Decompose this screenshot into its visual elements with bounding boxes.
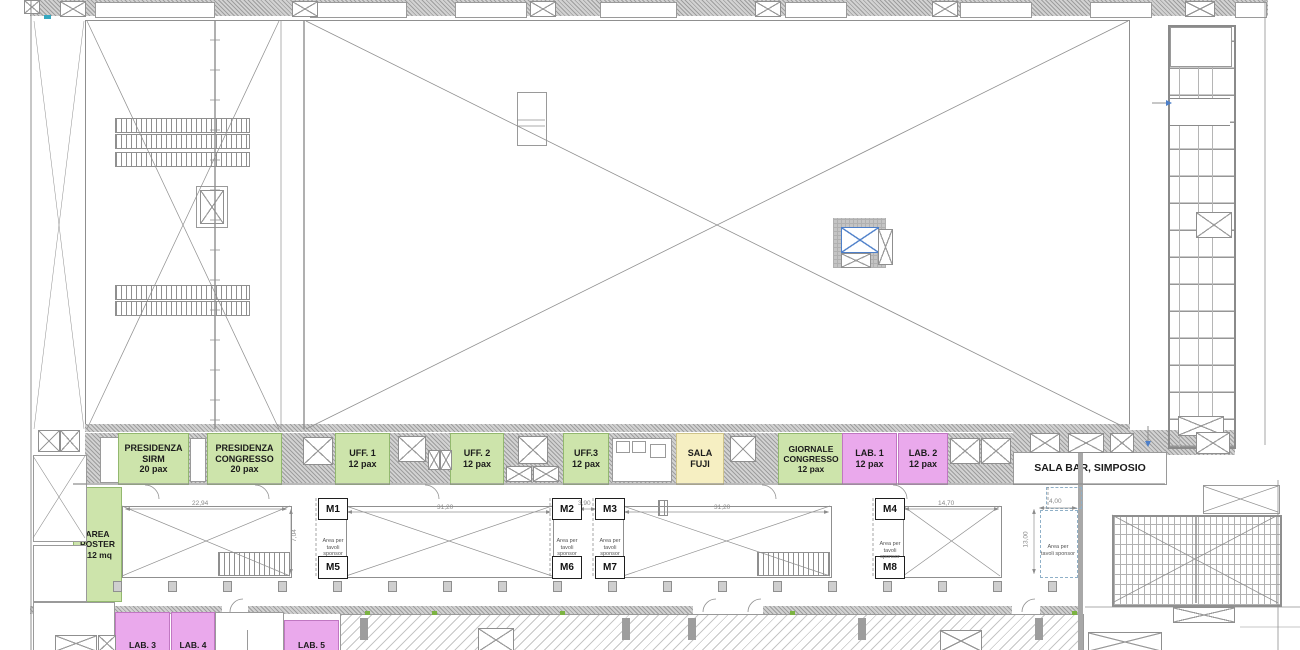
sponsor-area-label: Area per tavoli sponsor xyxy=(594,538,626,558)
top-rooms-block xyxy=(785,2,847,18)
hall-bottom-wall xyxy=(85,424,1130,432)
plant-marker xyxy=(432,611,437,615)
column-marker xyxy=(168,581,177,592)
elevator-cab xyxy=(533,466,559,482)
stairs xyxy=(115,118,250,133)
service-room xyxy=(100,437,120,483)
room-uff-3: UFF.3 12 pax xyxy=(563,433,609,485)
shaft-x-marker xyxy=(60,430,80,452)
fixture xyxy=(650,444,666,458)
shaft-x-marker xyxy=(1196,432,1230,454)
top-rooms-block xyxy=(95,2,215,18)
room-label: UFF. 1 12 pax xyxy=(348,448,376,469)
sponsor-marker-m7: M7 xyxy=(595,556,625,579)
shaft-x-marker xyxy=(1196,212,1232,238)
shaft-x-marker xyxy=(940,630,982,650)
column-post xyxy=(858,618,866,640)
roof-light xyxy=(1203,485,1280,514)
shaft-x-marker xyxy=(478,628,514,650)
room-label: UFF.3 12 pax xyxy=(572,448,600,469)
column-marker xyxy=(993,581,1002,592)
service-room xyxy=(190,438,206,482)
column-marker xyxy=(388,581,397,592)
room-label: LAB. 2 12 pax xyxy=(909,448,938,469)
sponsor-marker-m3: M3 xyxy=(595,498,625,520)
stairs xyxy=(115,152,250,167)
column-marker xyxy=(223,581,232,592)
shaft-x-marker xyxy=(1068,433,1104,453)
sponsor-area-label: Area per tavoli sponsor xyxy=(1041,544,1075,557)
wc-block xyxy=(215,612,284,650)
door-gap xyxy=(693,606,763,614)
right-strip-room xyxy=(1170,27,1232,67)
hall-fixture xyxy=(517,92,547,146)
room-label: PRESIDENZA CONGRESSO 20 pax xyxy=(215,443,274,475)
shaft-x-marker xyxy=(950,438,980,464)
shaft-x-marker xyxy=(38,430,60,452)
column-post xyxy=(1035,618,1043,640)
sponsor-marker-m6: M6 xyxy=(552,556,582,579)
plant-marker xyxy=(560,611,565,615)
shaft-x-marker xyxy=(292,1,318,17)
room-sala-bar-simposio: SALA BAR, SIMPOSIO xyxy=(1013,452,1167,485)
stairs xyxy=(218,552,290,576)
shaft-x-marker xyxy=(1173,607,1235,623)
fixture xyxy=(632,441,646,453)
elevator-cab xyxy=(841,253,871,268)
plant-marker xyxy=(1072,611,1077,615)
top-rooms-block xyxy=(960,2,1032,18)
elevator-cab xyxy=(440,450,452,470)
shaft-x-marker xyxy=(730,436,756,462)
shaft-x-marker xyxy=(200,190,224,224)
sponsor-marker-m1: M1 xyxy=(318,498,348,520)
dimension-label: 4,00 xyxy=(1049,498,1062,505)
shaft-x-marker xyxy=(98,635,116,650)
right-strip-landing xyxy=(1170,98,1230,126)
room-uff-2: UFF. 2 12 pax xyxy=(450,433,504,485)
room-label: LAB. 4 xyxy=(180,640,207,650)
room-label: UFF. 2 12 pax xyxy=(463,448,491,469)
column-marker xyxy=(333,581,342,592)
shaft-x-marker xyxy=(530,1,556,17)
room-label: LAB. 3 xyxy=(129,640,156,650)
plant-marker xyxy=(790,611,795,615)
shaft-x-marker xyxy=(981,438,1011,464)
stairs xyxy=(658,500,668,516)
room-lab-4: LAB. 4 xyxy=(171,612,215,650)
dimension-label: 3,90 xyxy=(578,500,591,507)
room-giornale-congresso: GIORNALE CONGRESSO 12 pax xyxy=(778,433,844,485)
dimension-label: 13,00 xyxy=(1023,531,1030,547)
shaft-x-marker xyxy=(1185,1,1215,17)
main-hall xyxy=(85,20,1130,431)
room-label: SALA FUJI xyxy=(688,448,713,469)
room-presidenza-sirm: PRESIDENZA SIRM 20 pax xyxy=(118,433,189,485)
stairs xyxy=(115,301,250,316)
top-rooms-block xyxy=(310,2,407,18)
dimension-label: 14,70 xyxy=(938,500,954,507)
shaft-x-marker xyxy=(1110,433,1134,453)
side-room xyxy=(33,455,87,542)
side-room xyxy=(33,545,87,602)
dimension-label: 31,20 xyxy=(437,504,453,511)
elevator-cab-selected xyxy=(841,227,879,253)
sponsor-area-label: Area per tavoli sponsor xyxy=(874,541,906,561)
elevator-cab xyxy=(428,450,440,470)
room-label: GIORNALE CONGRESSO 12 pax xyxy=(783,444,838,474)
fixture xyxy=(616,441,630,453)
column-marker xyxy=(883,581,892,592)
shaft-x-marker xyxy=(24,0,40,14)
elevator-cab xyxy=(506,466,532,482)
room-lab-3: LAB. 3 xyxy=(115,612,170,650)
room-label: SALA BAR, SIMPOSIO xyxy=(1034,462,1146,474)
stairs xyxy=(115,285,250,300)
column-marker xyxy=(663,581,672,592)
booth-area-2 xyxy=(346,506,554,578)
top-rooms-block xyxy=(600,2,677,18)
column-marker xyxy=(938,581,947,592)
room-lab-5: LAB. 5 xyxy=(284,620,339,650)
room-label: PRESIDENZA SIRM 20 pax xyxy=(124,443,182,475)
floor-plan: PRESIDENZA SIRM 20 pax PRESIDENZA CONGRE… xyxy=(0,0,1300,650)
elevator-cab xyxy=(878,229,893,265)
door-gap xyxy=(1012,606,1040,614)
column-marker xyxy=(718,581,727,592)
column-marker xyxy=(828,581,837,592)
column-marker xyxy=(498,581,507,592)
room-lab-1: LAB. 1 12 pax xyxy=(842,433,897,485)
room-label: LAB. 5 xyxy=(298,640,325,650)
shaft-x-marker xyxy=(1088,632,1162,650)
shaft-x-marker xyxy=(1030,433,1060,453)
shaft-x-marker xyxy=(755,1,781,17)
dimension-label: 31,20 xyxy=(714,504,730,511)
top-rooms-block xyxy=(1235,2,1267,18)
sponsor-area-label: Area per tavoli sponsor xyxy=(317,538,349,558)
wall xyxy=(247,630,248,650)
shaft-x-marker xyxy=(55,635,97,650)
dimension-label: 7,04 xyxy=(291,529,298,542)
sponsor-marker-m4: M4 xyxy=(875,498,905,520)
room-presidenza-congresso: PRESIDENZA CONGRESSO 20 pax xyxy=(207,433,282,485)
room-label: LAB. 1 12 pax xyxy=(855,448,884,469)
top-rooms-block xyxy=(1090,2,1152,18)
shaft-x-marker xyxy=(60,1,86,17)
room-uff-1: UFF. 1 12 pax xyxy=(335,433,390,485)
booth-area-4 xyxy=(903,506,1002,578)
column-marker xyxy=(553,581,562,592)
grid-stair-block xyxy=(1112,515,1282,607)
shaft-x-marker xyxy=(398,436,426,462)
sponsor-marker-m5: M5 xyxy=(318,556,348,579)
column-post xyxy=(622,618,630,640)
column-post xyxy=(688,618,696,640)
shaft-x-marker xyxy=(518,436,548,464)
wall xyxy=(1078,445,1083,650)
room-sala-fuji: SALA FUJI xyxy=(676,433,724,485)
room-lab-2: LAB. 2 12 pax xyxy=(898,433,948,485)
column-marker xyxy=(1048,581,1057,592)
column-marker xyxy=(278,581,287,592)
plant-marker xyxy=(365,611,370,615)
stairs xyxy=(115,134,250,149)
column-marker xyxy=(443,581,452,592)
column-marker xyxy=(608,581,617,592)
shaft-x-marker xyxy=(303,437,333,465)
column-marker xyxy=(113,581,122,592)
stairs xyxy=(757,552,830,576)
column-post xyxy=(360,618,368,640)
sponsor-area-label: Area per tavoli sponsor xyxy=(551,538,583,558)
shaft-x-marker xyxy=(932,1,958,17)
column-marker xyxy=(773,581,782,592)
top-rooms-block xyxy=(455,2,527,18)
dimension-label: 22,94 xyxy=(192,500,208,507)
